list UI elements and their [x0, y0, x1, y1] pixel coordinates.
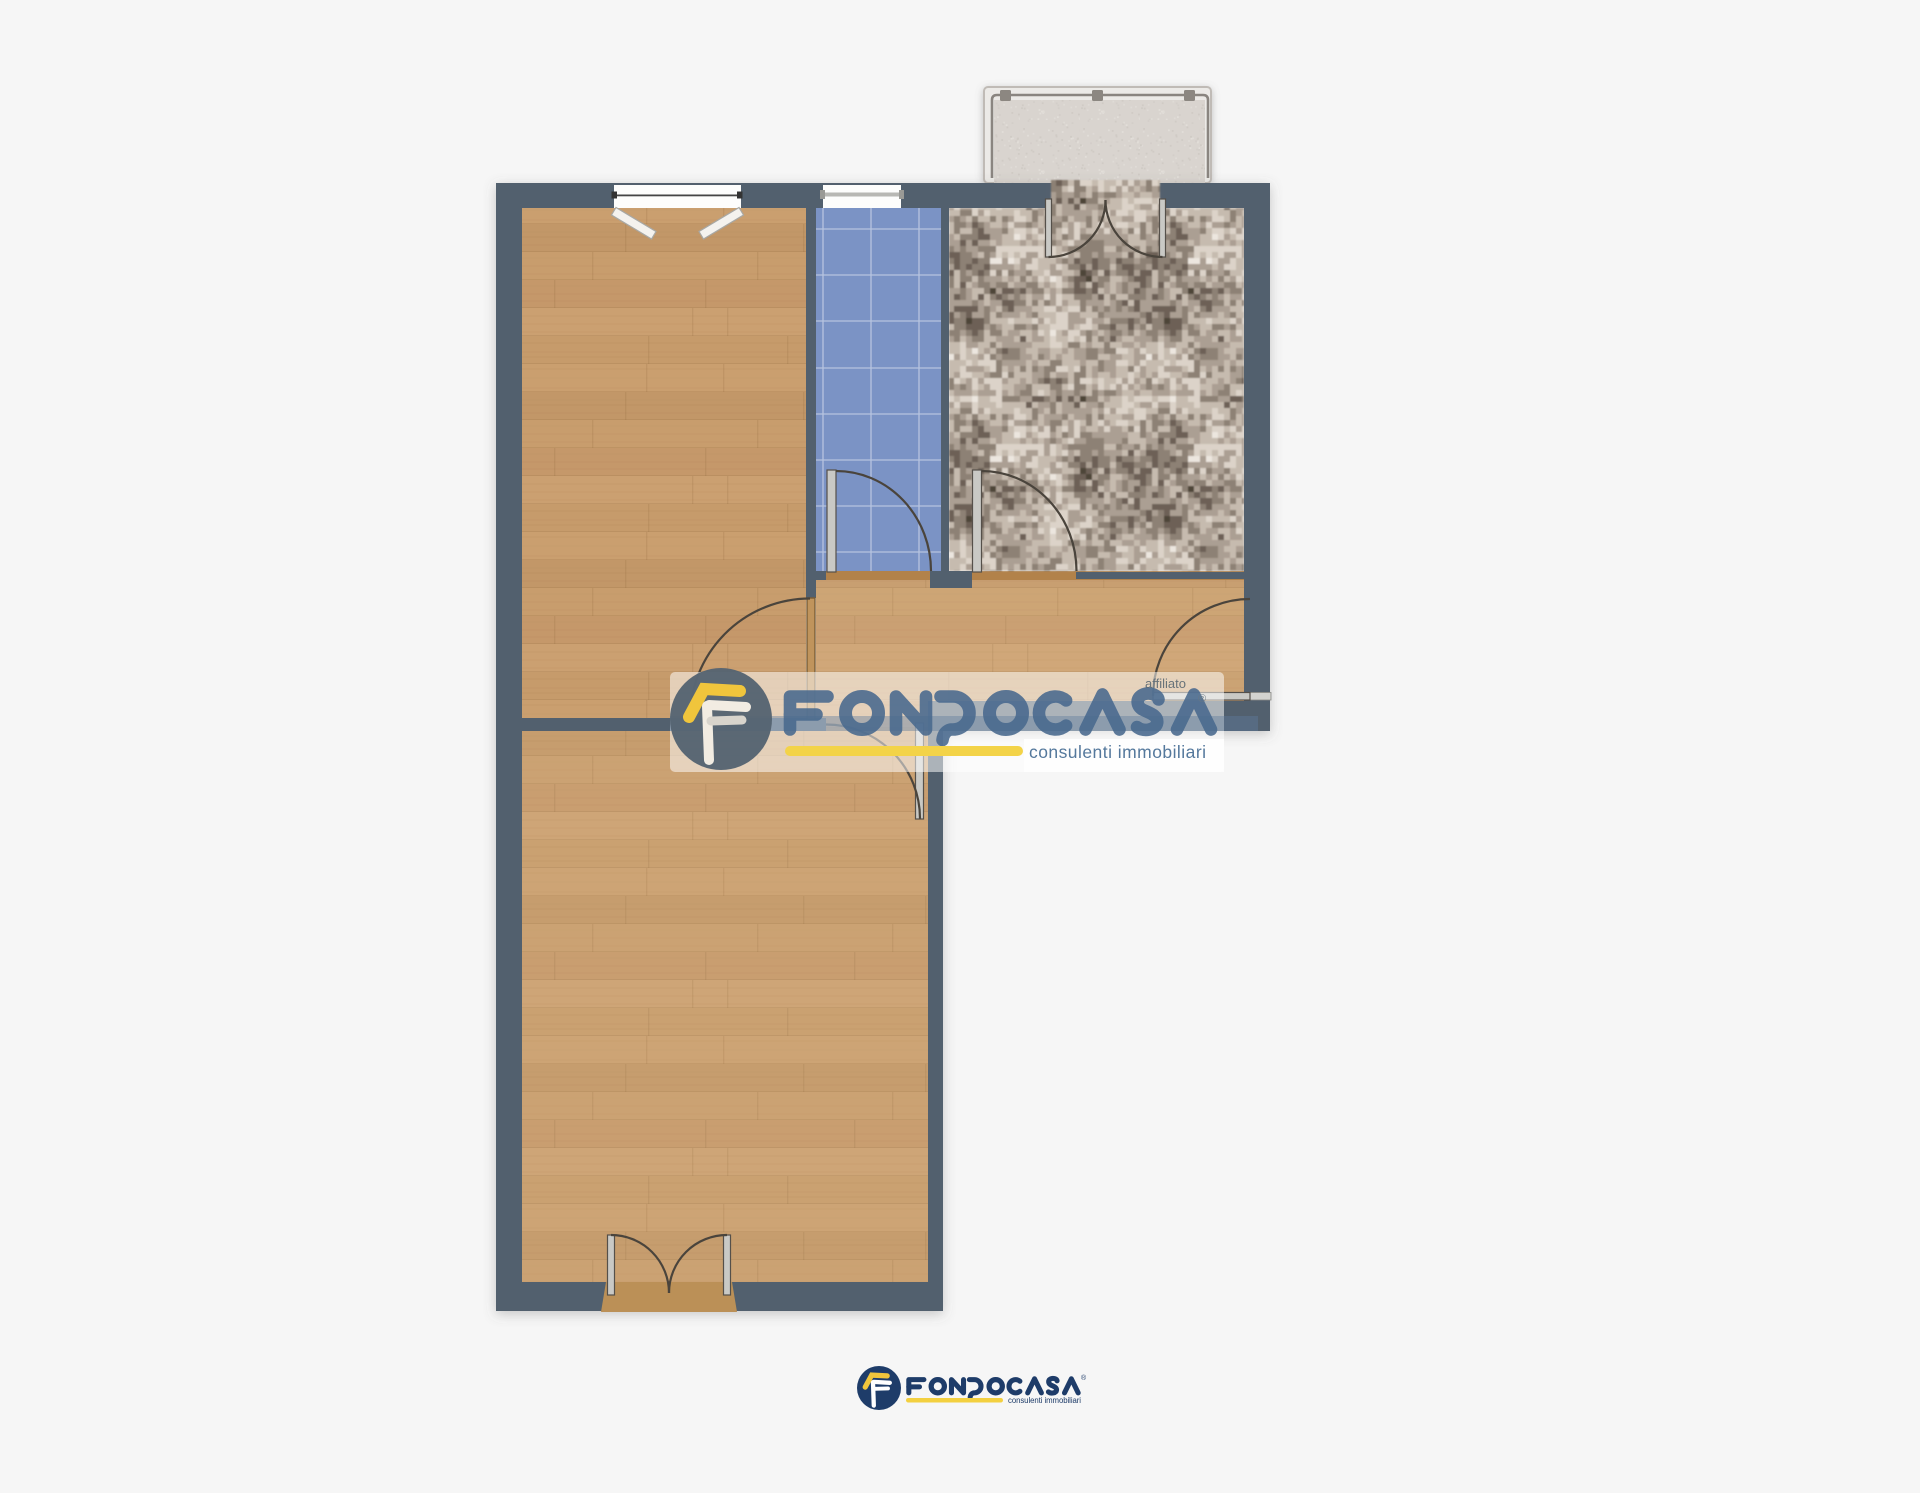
- svg-text:affiliato: affiliato: [1145, 676, 1186, 691]
- svg-text:consulenti immobiliari: consulenti immobiliari: [1029, 742, 1206, 762]
- svg-text:®: ®: [1081, 1374, 1087, 1382]
- svg-text:®: ®: [1198, 693, 1206, 705]
- svg-text:consulenti immobiliari: consulenti immobiliari: [1008, 1396, 1081, 1405]
